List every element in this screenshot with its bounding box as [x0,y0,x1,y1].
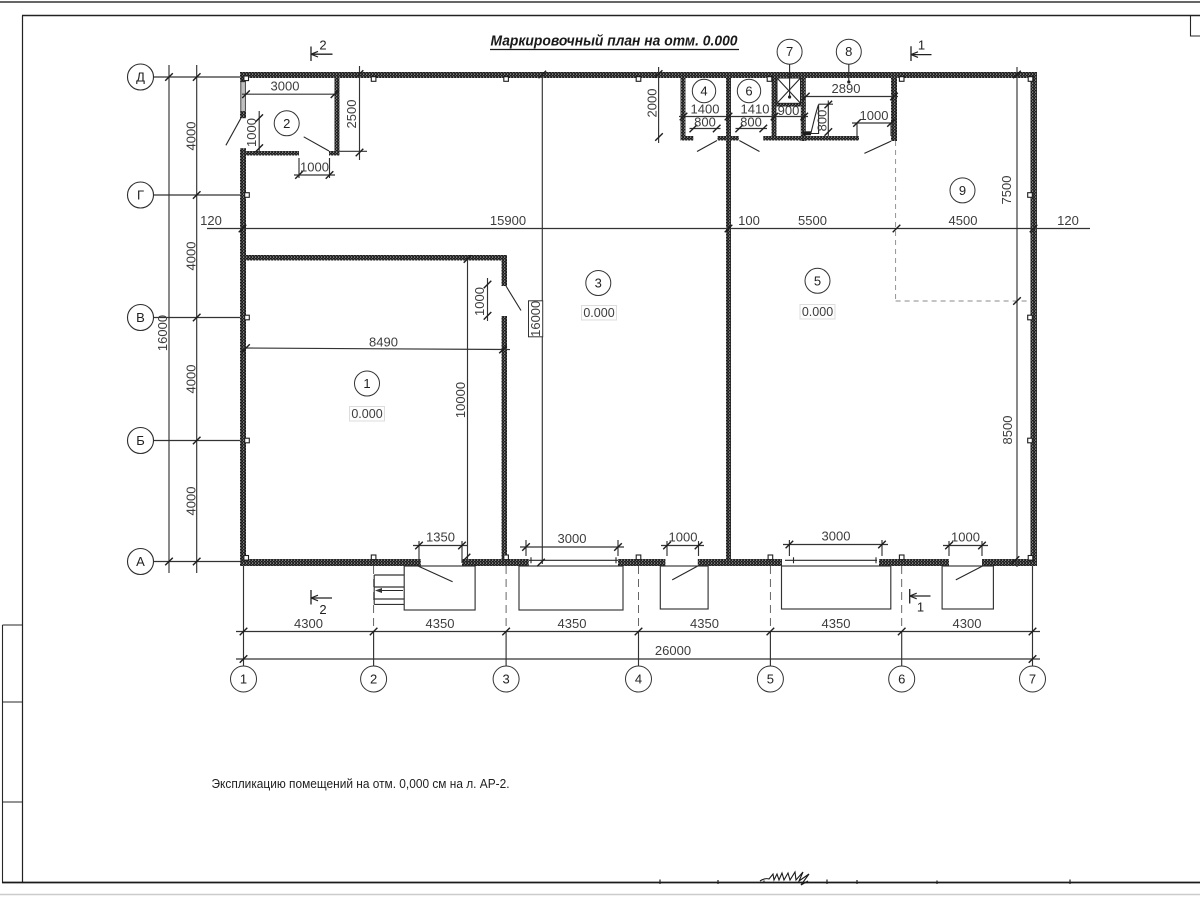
svg-text:4000: 4000 [184,365,199,394]
svg-text:4: 4 [635,672,642,687]
svg-text:4300: 4300 [294,616,323,631]
svg-text:100: 100 [738,213,760,228]
svg-text:3: 3 [502,672,509,687]
svg-text:2: 2 [319,37,326,52]
svg-text:Экспликацию помещений на отм.: Экспликацию помещений на отм. 0,000 см н… [212,776,510,791]
svg-text:1: 1 [240,672,247,687]
svg-text:10000: 10000 [453,382,468,418]
svg-text:7: 7 [1029,672,1036,687]
svg-text:800: 800 [740,115,762,130]
svg-text:120: 120 [200,213,222,228]
svg-text:4350: 4350 [690,616,719,631]
svg-text:1000: 1000 [669,530,698,545]
svg-text:6: 6 [745,84,752,99]
svg-text:5: 5 [814,273,821,288]
svg-text:120: 120 [1057,213,1079,228]
svg-text:1: 1 [918,37,925,52]
svg-text:3000: 3000 [822,529,851,544]
svg-text:0.000: 0.000 [802,305,833,319]
svg-text:0.000: 0.000 [351,407,382,421]
svg-text:4300: 4300 [953,616,982,631]
svg-text:4350: 4350 [822,616,851,631]
svg-text:7500: 7500 [999,176,1014,205]
svg-text:8500: 8500 [1000,416,1015,445]
svg-text:900: 900 [778,103,800,118]
svg-text:9: 9 [959,183,966,198]
svg-text:15900: 15900 [490,213,526,228]
svg-text:1000: 1000 [472,287,487,316]
svg-text:4350: 4350 [426,616,455,631]
svg-text:3: 3 [595,276,602,291]
svg-text:5500: 5500 [798,213,827,228]
svg-text:Б: Б [136,433,145,448]
svg-text:4: 4 [700,84,707,99]
svg-text:1350: 1350 [426,530,455,545]
svg-text:3000: 3000 [558,531,587,546]
svg-text:800: 800 [694,115,716,130]
svg-text:16000: 16000 [528,301,543,337]
svg-text:3000: 3000 [271,79,300,94]
svg-text:2: 2 [370,672,377,687]
svg-text:Маркировочный план на отм. 0.0: Маркировочный план на отм. 0.000 [491,34,738,50]
svg-text:4000: 4000 [184,242,199,271]
svg-text:2: 2 [319,602,326,617]
svg-text:26000: 26000 [655,643,691,658]
svg-text:1000: 1000 [300,160,329,175]
svg-text:4000: 4000 [184,122,199,151]
svg-text:2: 2 [283,116,290,131]
svg-text:5: 5 [767,672,774,687]
svg-text:В: В [136,310,145,325]
svg-text:Г: Г [137,188,144,203]
svg-text:16000: 16000 [155,315,170,351]
svg-text:4350: 4350 [558,616,587,631]
svg-text:2500: 2500 [344,100,359,129]
svg-text:4000: 4000 [184,487,199,516]
svg-text:0.000: 0.000 [583,306,614,320]
svg-text:6: 6 [898,672,905,687]
svg-text:1: 1 [363,376,370,391]
svg-text:7: 7 [786,44,793,59]
svg-text:800: 800 [815,110,830,132]
svg-text:1: 1 [917,600,924,615]
svg-text:2000: 2000 [645,89,660,118]
svg-text:8: 8 [845,44,852,59]
svg-text:8490: 8490 [369,335,398,350]
svg-text:Д: Д [136,70,145,85]
svg-text:1000: 1000 [244,118,259,147]
svg-text:1000: 1000 [951,530,980,545]
svg-text:1000: 1000 [860,108,889,123]
svg-text:4500: 4500 [949,213,978,228]
svg-text:2890: 2890 [832,81,861,96]
svg-text:А: А [136,554,145,569]
